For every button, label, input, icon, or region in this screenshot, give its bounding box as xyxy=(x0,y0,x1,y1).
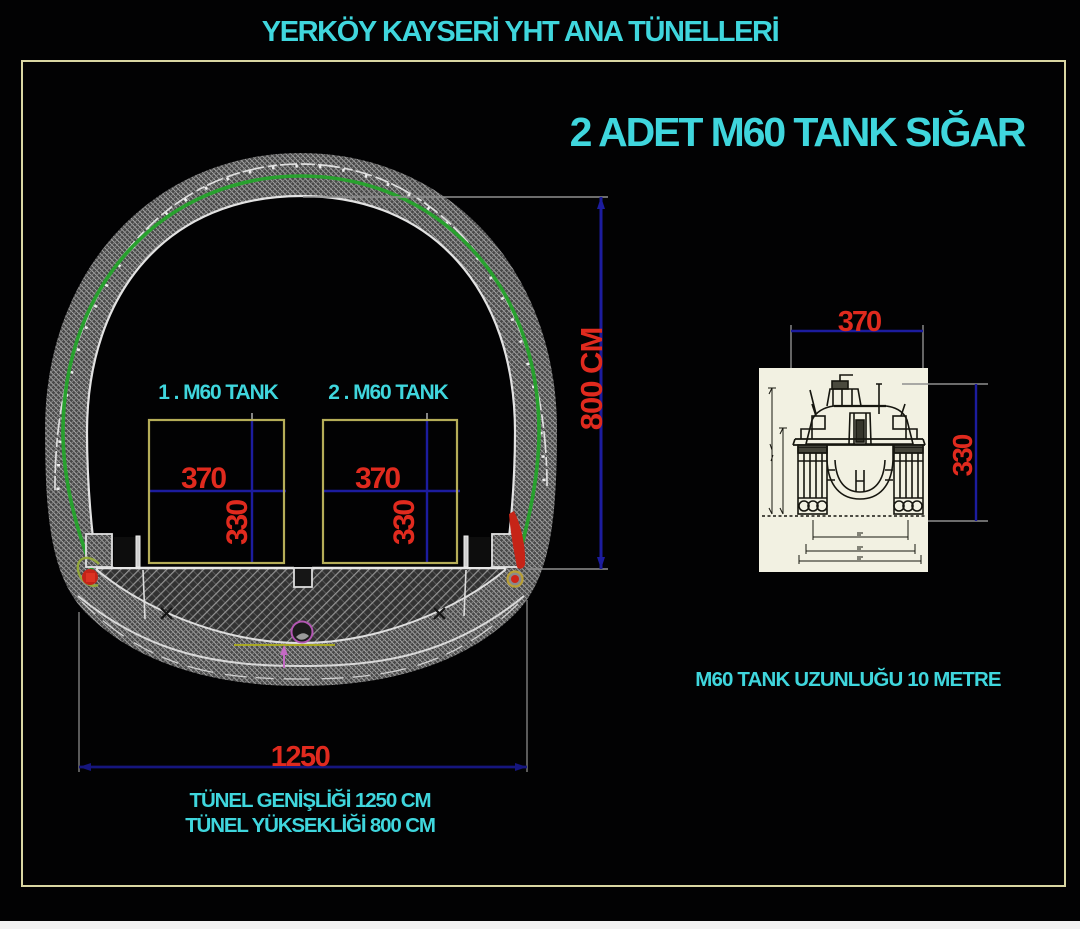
svg-text:330: 330 xyxy=(388,500,421,545)
svg-text:TÜNEL GENİŞLİĞİ 1250 CM: TÜNEL GENİŞLİĞİ 1250 CM xyxy=(190,788,431,812)
svg-text:2 . M60 TANK: 2 . M60 TANK xyxy=(328,381,448,404)
svg-text:370: 370 xyxy=(355,462,400,495)
svg-text:M60 TANK UZUNLUĞU 10 METRE: M60 TANK UZUNLUĞU 10 METRE xyxy=(695,667,1001,691)
svg-text:YERKÖY KAYSERİ YHT ANA TÜNELLE: YERKÖY KAYSERİ YHT ANA TÜNELLERİ xyxy=(262,15,779,48)
svg-text:370: 370 xyxy=(838,306,881,338)
svg-text:330: 330 xyxy=(221,500,254,545)
svg-text:2 ADET M60 TANK SIĞAR: 2 ADET M60 TANK SIĞAR xyxy=(570,109,1026,155)
svg-text:1 . M60 TANK: 1 . M60 TANK xyxy=(158,381,278,404)
svg-text:330: 330 xyxy=(947,434,978,476)
svg-text:1250: 1250 xyxy=(271,741,330,773)
svg-text:TÜNEL YÜKSEKLİĞİ 800 CM: TÜNEL YÜKSEKLİĞİ 800 CM xyxy=(185,813,435,837)
svg-text:370: 370 xyxy=(181,462,226,495)
svg-text:800 CM: 800 CM xyxy=(574,328,609,431)
